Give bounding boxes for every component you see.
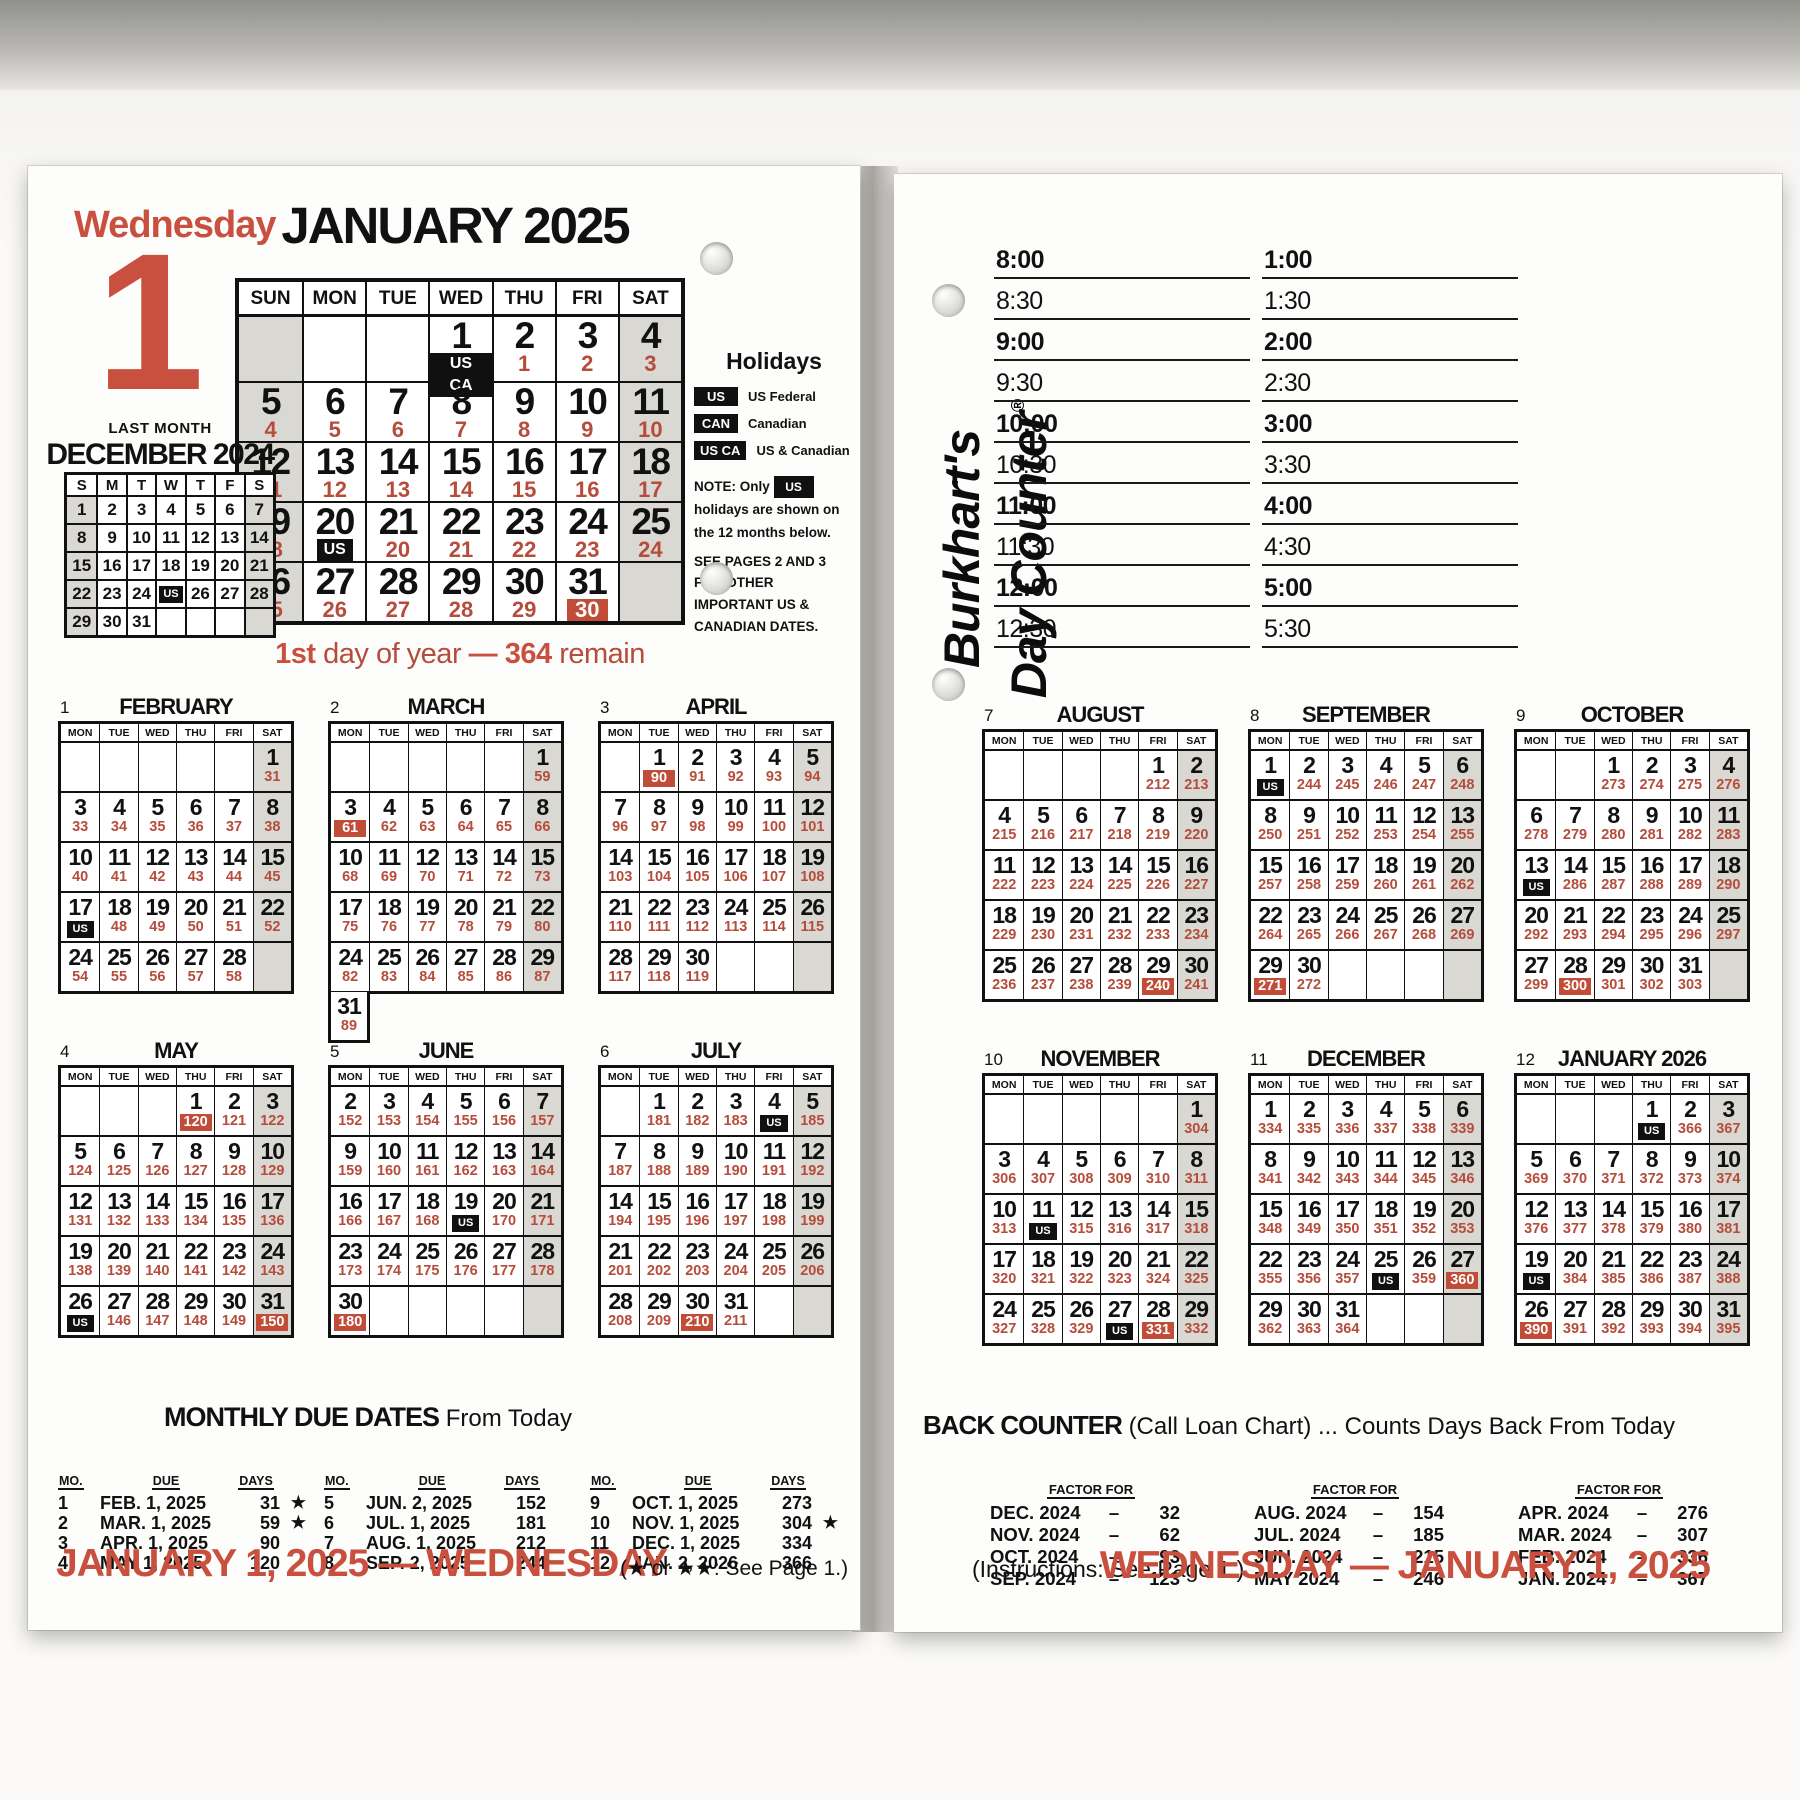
calendar-day-cell bbox=[244, 609, 273, 635]
calendar-day-cell bbox=[99, 1087, 137, 1135]
day-count: 392 bbox=[1595, 1321, 1632, 1338]
weekday-header: THU bbox=[716, 724, 754, 741]
day-count bbox=[1710, 977, 1747, 994]
day-count: 253 bbox=[1367, 827, 1404, 844]
calendar-day-cell: 6278 bbox=[1517, 801, 1555, 849]
weekday-header: TUE bbox=[365, 282, 428, 314]
calendar-day-cell: 27US bbox=[1100, 1295, 1138, 1343]
day-count: 302 bbox=[1633, 977, 1670, 994]
day-number: 24 bbox=[1710, 1247, 1747, 1271]
calendar-day-cell: 1US bbox=[1632, 1095, 1670, 1143]
day-number: 4 bbox=[409, 1089, 446, 1113]
day-count: 135 bbox=[215, 1213, 252, 1230]
day-of-year-text: day of year bbox=[323, 638, 461, 670]
day-count bbox=[1101, 777, 1138, 794]
calendar-day-cell: 12223 bbox=[1023, 851, 1061, 899]
calendar-day-cell: 9281 bbox=[1632, 801, 1670, 849]
day-count: 321 bbox=[1024, 1271, 1061, 1288]
calendar-day-cell: 897 bbox=[639, 793, 677, 841]
day-count: 104 bbox=[640, 869, 677, 886]
day-number: 8 bbox=[430, 385, 491, 419]
day-number: 19 bbox=[794, 1189, 831, 1213]
day-number: 5 bbox=[1405, 753, 1442, 777]
calendar-week-row: 8341934210343113441234513346 bbox=[1251, 1143, 1481, 1193]
calendar-day-cell: 28178 bbox=[523, 1237, 561, 1285]
day-count: 227 bbox=[1178, 877, 1215, 894]
column-header bbox=[812, 1473, 838, 1490]
calendar-day-cell: 19199 bbox=[793, 1187, 831, 1235]
day-number: 23 bbox=[679, 895, 716, 919]
day-count: 23 bbox=[557, 539, 618, 560]
day-number: 15 bbox=[640, 1189, 677, 1213]
day-count: 10 bbox=[620, 419, 681, 440]
day-count: 222 bbox=[985, 877, 1023, 894]
calendar-week-row: 24542555265627572858 bbox=[61, 941, 291, 991]
day-number: 19 bbox=[139, 895, 176, 919]
calendar-day-cell bbox=[253, 943, 291, 991]
day-count: 114 bbox=[755, 919, 792, 936]
day-number: 15 bbox=[1139, 853, 1176, 877]
due-date-row: 6JUL. 1, 2025181 bbox=[324, 1513, 572, 1533]
day-count: 113 bbox=[717, 919, 754, 936]
day-number: 10 bbox=[985, 1197, 1023, 1221]
day-count: 8 bbox=[494, 419, 555, 440]
day-number: 31 bbox=[1329, 1297, 1366, 1321]
calendar-week-row: 112221222313224142251522616227 bbox=[985, 849, 1215, 899]
day-count bbox=[139, 1113, 176, 1130]
calendar-day-cell: 20323 bbox=[1100, 1245, 1138, 1293]
day-count: 395 bbox=[1710, 1321, 1747, 1338]
day-count: 231 bbox=[1063, 927, 1100, 944]
day-count: 280 bbox=[1595, 827, 1632, 844]
day-count: 323 bbox=[1101, 1271, 1138, 1288]
calendar-day-cell: 23142 bbox=[214, 1237, 252, 1285]
calendar-week-row: 215231534154515561567157 bbox=[331, 1087, 561, 1135]
day-number: 26 bbox=[1405, 903, 1442, 927]
photo-canvas: Wednesday 1 JANUARY 2025 SUNMONTUEWEDTHU… bbox=[0, 0, 1800, 1800]
day-count bbox=[1444, 1321, 1481, 1338]
calendar-day-cell: 18198 bbox=[754, 1187, 792, 1235]
factor-month: AUG. 2024 bbox=[1250, 1502, 1366, 1524]
calendar-day-cell: 29 bbox=[67, 609, 96, 635]
day-count bbox=[1101, 1121, 1138, 1138]
calendar-day-cell: US bbox=[155, 581, 184, 607]
calendar-day-cell: 6 bbox=[214, 497, 243, 523]
weekday-header: TUE bbox=[99, 1068, 137, 1085]
calendar-week-row: 2729928300293013030231303 bbox=[1517, 949, 1747, 999]
calendar-day-cell: 434 bbox=[99, 793, 137, 841]
due-star bbox=[546, 1493, 572, 1513]
day-number: 24 bbox=[717, 1239, 754, 1263]
day-count: 87 bbox=[524, 969, 561, 986]
us-holiday-badge: US bbox=[1523, 1273, 1550, 1290]
calendar-day-cell: 1977 bbox=[408, 893, 446, 941]
calendar-day-cell: 22264 bbox=[1251, 901, 1289, 949]
day-count: 6 bbox=[367, 419, 428, 440]
weekday-header-row: MONTUEWEDTHUFRISAT bbox=[1517, 732, 1747, 751]
day-number: 27 bbox=[1556, 1297, 1593, 1321]
mini-month-header: 2MARCH bbox=[328, 694, 564, 721]
day-count: 195 bbox=[640, 1213, 677, 1230]
day-count: 12 bbox=[304, 479, 365, 500]
calendar-day-cell bbox=[1443, 951, 1481, 999]
day-count: 9 bbox=[557, 419, 618, 440]
day-number: 20 bbox=[100, 1239, 137, 1263]
calendar-day-cell: 26359 bbox=[1404, 1245, 1442, 1293]
day-count bbox=[1556, 777, 1593, 794]
day-count: 203 bbox=[679, 1263, 716, 1280]
day-number: 10 bbox=[1329, 803, 1366, 827]
day-number: 4 bbox=[1024, 1147, 1061, 1171]
calendar-day-cell: 998 bbox=[678, 793, 716, 841]
day-number: 31 bbox=[1671, 953, 1708, 977]
calendar-day-cell: 19108 bbox=[793, 843, 831, 891]
day-number: 29 bbox=[1178, 1297, 1215, 1321]
mini-month-grid: MONTUEWEDTHUFRISAT1313334345356367378381… bbox=[58, 721, 294, 994]
day-number bbox=[1063, 1097, 1100, 1121]
day-number: 17 bbox=[254, 1189, 291, 1213]
day-count: 199 bbox=[794, 1213, 831, 1230]
calendar-day-cell: 87 bbox=[428, 383, 491, 441]
day-number: 31 bbox=[1710, 1297, 1747, 1321]
day-count: 112 bbox=[679, 919, 716, 936]
calendar-day-cell: 26390 bbox=[1517, 1295, 1555, 1343]
monthly-due-dates: MONTHLY DUE DATES From Today MO.DUEDAYS1… bbox=[28, 1402, 860, 1433]
calendar-day-cell: 2078 bbox=[446, 893, 484, 941]
day-count: 58 bbox=[215, 969, 252, 986]
day-count: 1 bbox=[494, 353, 555, 374]
day-number: 23 bbox=[331, 1239, 369, 1263]
calendar-day-cell: 18321 bbox=[1023, 1245, 1061, 1293]
column-header-text: MO. bbox=[324, 1474, 350, 1490]
calendar-day-cell: 21140 bbox=[138, 1237, 176, 1285]
day-number: 11 bbox=[755, 795, 792, 819]
day-number: 24 bbox=[985, 1297, 1023, 1321]
day-number: 13 bbox=[1444, 803, 1481, 827]
holidays-title: Holidays bbox=[694, 348, 854, 375]
back-counter-row: APR. 2024–276 bbox=[1514, 1502, 1724, 1524]
calendar-day-cell: 30149 bbox=[214, 1287, 252, 1335]
day-number: 2 bbox=[679, 745, 716, 769]
day-number: 16 bbox=[494, 445, 555, 479]
day-count: 318 bbox=[1178, 1221, 1215, 1238]
day-number: 6 bbox=[1556, 1147, 1593, 1171]
day-number: 11 bbox=[1367, 803, 1404, 827]
day-count: 290 bbox=[1710, 877, 1747, 894]
time-label: 9:30 bbox=[996, 369, 1043, 398]
time-label: 3:00 bbox=[1264, 410, 1312, 439]
day-count: 150 bbox=[256, 1314, 288, 1331]
day-number: 9 bbox=[331, 1139, 369, 1163]
day-count: 232 bbox=[1101, 927, 1138, 944]
calendar-day-cell: 31 bbox=[126, 609, 155, 635]
mini-month-october: 9OCTOBERMONTUEWEDTHUFRISAT12732274327542… bbox=[1514, 702, 1750, 1002]
day-number: 1 bbox=[1251, 1097, 1289, 1121]
day-number bbox=[1556, 753, 1593, 777]
day-number bbox=[1367, 953, 1404, 977]
calendar-day-cell: 16227 bbox=[1177, 851, 1215, 899]
day-count: 63 bbox=[409, 819, 446, 836]
day-count bbox=[1367, 977, 1404, 994]
calendar-week-row: 159 bbox=[331, 743, 561, 791]
day-count: 51 bbox=[215, 919, 252, 936]
time-label: 12:00 bbox=[996, 574, 1057, 603]
day-number: 9 bbox=[1290, 1147, 1327, 1171]
day-number: 11 bbox=[985, 853, 1023, 877]
calendar-week-row: 8250925110252112531225413255 bbox=[1251, 799, 1481, 849]
calendar-day-cell: 737 bbox=[214, 793, 252, 841]
day-number: 15 bbox=[177, 1189, 214, 1213]
day-number: 23 bbox=[215, 1239, 252, 1263]
calendar-day-cell: 1120 bbox=[176, 1087, 214, 1135]
back-counter-heading: BACK COUNTER bbox=[923, 1410, 1122, 1440]
calendar-day-cell bbox=[1404, 951, 1442, 999]
calendar-day-cell: 13377 bbox=[1555, 1195, 1593, 1243]
calendar-week-row: 1181218231834US5185 bbox=[601, 1087, 831, 1135]
day-number: 6 bbox=[1101, 1147, 1138, 1171]
day-of-year-line: 1st day of year — 364 remain bbox=[235, 638, 685, 671]
calendar-day-cell: 22 bbox=[67, 581, 96, 607]
day-number bbox=[985, 1097, 1023, 1121]
day-count: 21 bbox=[430, 539, 491, 560]
day-number: 27 bbox=[1444, 1247, 1481, 1271]
day-count: 236 bbox=[985, 977, 1023, 994]
calendar-day-cell: 10343 bbox=[1328, 1145, 1366, 1193]
day-number: 30 bbox=[679, 945, 716, 969]
day-number: 17 bbox=[61, 895, 99, 919]
calendar-day-cell: 18107 bbox=[754, 843, 792, 891]
calendar-day-cell: 796 bbox=[601, 793, 639, 841]
us-badge: US bbox=[694, 387, 738, 406]
calendar-day-cell: 29118 bbox=[639, 943, 677, 991]
day-number: 1 bbox=[1633, 1097, 1670, 1121]
time-slot: 1:00 bbox=[1262, 238, 1518, 279]
day-number: 11 bbox=[1024, 1197, 1061, 1221]
day-count: 295 bbox=[1633, 927, 1670, 944]
day-number: 16 bbox=[679, 845, 716, 869]
calendar-day-cell: 7279 bbox=[1555, 801, 1593, 849]
day-number: 9 bbox=[679, 795, 716, 819]
day-number: 22 bbox=[1251, 903, 1289, 927]
day-count: 161 bbox=[409, 1163, 446, 1180]
calendar-day-cell: 2482 bbox=[331, 943, 369, 991]
day-number: 19 bbox=[409, 895, 446, 919]
calendar-day-cell: 24296 bbox=[1670, 901, 1708, 949]
calendar-day-cell bbox=[331, 743, 369, 791]
calendar-week-row: 141941519516196171971819819199 bbox=[601, 1185, 831, 1235]
day-number bbox=[1101, 753, 1138, 777]
month-name: FEBRUARY bbox=[58, 694, 294, 720]
calendar-day-cell: 4337 bbox=[1366, 1095, 1404, 1143]
day-number: 27 bbox=[485, 1239, 522, 1263]
factor-month: JUL. 2024 bbox=[1250, 1524, 1366, 1546]
time-slot: 3:30 bbox=[1262, 443, 1518, 484]
day-count: 367 bbox=[1710, 1121, 1747, 1138]
factor-value: 185 bbox=[1390, 1524, 1444, 1546]
day-count: 278 bbox=[1517, 827, 1555, 844]
month-name: SEPTEMBER bbox=[1248, 702, 1484, 728]
day-count: 75 bbox=[331, 919, 369, 936]
calendar-day-cell: 361 bbox=[331, 793, 369, 841]
day-number: 29 bbox=[1595, 953, 1632, 977]
day-count: 48 bbox=[100, 919, 137, 936]
day-count: 136 bbox=[254, 1213, 291, 1230]
day-count: 276 bbox=[1710, 777, 1747, 794]
calendar-day-cell: 10160 bbox=[369, 1137, 407, 1185]
calendar-day-cell: 17 bbox=[126, 553, 155, 579]
day-count: 106 bbox=[717, 869, 754, 886]
day-number: 13 bbox=[1444, 1147, 1481, 1171]
calendar-day-cell: 1615 bbox=[492, 443, 555, 501]
calendar-day-cell: 26 bbox=[185, 581, 214, 607]
weekday-header: WED bbox=[1594, 1076, 1632, 1093]
weekday-header: MON bbox=[1517, 732, 1555, 749]
month-name: AUGUST bbox=[982, 702, 1218, 728]
day-number: 22 bbox=[524, 895, 561, 919]
day-count: 262 bbox=[1444, 877, 1481, 894]
calendar-day-cell bbox=[1100, 751, 1138, 799]
day-number: 11 bbox=[755, 1139, 792, 1163]
due-month-number: 1 bbox=[58, 1493, 90, 1513]
day-number: 31 bbox=[557, 565, 618, 599]
day-number bbox=[139, 1089, 176, 1113]
day-count: 247 bbox=[1405, 777, 1442, 794]
due-date: MAR. 1, 2025 bbox=[90, 1513, 232, 1533]
day-number: 20 bbox=[177, 895, 214, 919]
day-count: 79 bbox=[485, 919, 522, 936]
day-count bbox=[1556, 1121, 1593, 1138]
calendar-day-cell: 15379 bbox=[1632, 1195, 1670, 1243]
day-number: 10 bbox=[254, 1139, 291, 1163]
day-count: 364 bbox=[1329, 1321, 1366, 1338]
day-number bbox=[1139, 1097, 1176, 1121]
calendar-day-cell: 22111 bbox=[639, 893, 677, 941]
due-month-number: 5 bbox=[324, 1493, 356, 1513]
calendar-day-cell: 15104 bbox=[639, 843, 677, 891]
day-count: 300 bbox=[1559, 978, 1591, 995]
weekday-header: WED bbox=[408, 724, 446, 741]
day-number bbox=[1595, 1097, 1632, 1121]
day-number: 3 bbox=[331, 795, 369, 819]
calendar-day-cell: 25114 bbox=[754, 893, 792, 941]
weekday-header: TUE bbox=[99, 724, 137, 741]
due-date-row: 2MAR. 1, 202559★ bbox=[58, 1513, 306, 1533]
day-number bbox=[1024, 753, 1061, 777]
calendar-day-cell: 8188 bbox=[639, 1137, 677, 1185]
calendar-day-cell: 392 bbox=[716, 743, 754, 791]
column-header: MO. bbox=[324, 1473, 356, 1490]
day-number: 2 bbox=[1671, 1097, 1708, 1121]
column-header-text: MO. bbox=[590, 1474, 616, 1490]
holidays-note: NOTE: Only US holidays are shown on the … bbox=[694, 476, 854, 545]
calendar-day-cell: 29332 bbox=[1177, 1295, 1215, 1343]
month-index: 5 bbox=[330, 1042, 339, 1062]
month-index: 3 bbox=[600, 698, 609, 718]
calendar-day-cell: 27146 bbox=[99, 1287, 137, 1335]
calendar-day-cell: 22325 bbox=[1177, 1245, 1215, 1293]
calendar-day-cell: 11191 bbox=[754, 1137, 792, 1185]
day-count: 209 bbox=[640, 1313, 677, 1330]
can-badge: CAN bbox=[694, 414, 738, 433]
calendar-day-cell: 7218 bbox=[1100, 801, 1138, 849]
us-holiday-badge: US bbox=[1523, 879, 1550, 896]
column-header-text: DUE bbox=[418, 1474, 446, 1490]
day-count: 29 bbox=[494, 599, 555, 620]
day-count: 91 bbox=[679, 769, 716, 786]
calendar-day-cell: 21324 bbox=[1138, 1245, 1176, 1293]
day-count: 121 bbox=[215, 1113, 252, 1130]
day-count: 310 bbox=[1139, 1171, 1176, 1188]
day-number: 5 bbox=[139, 795, 176, 819]
day-count bbox=[100, 1113, 137, 1130]
time-label: 10:00 bbox=[996, 410, 1057, 439]
calendar-day-cell: 17197 bbox=[716, 1187, 754, 1235]
day-count: 42 bbox=[139, 869, 176, 886]
factor-value: 62 bbox=[1126, 1524, 1180, 1546]
day-number: 20 bbox=[1444, 853, 1481, 877]
mini-month-september: 8SEPTEMBERMONTUEWEDTHUFRISAT1US224432454… bbox=[1248, 702, 1484, 1002]
day-number: 22 bbox=[1178, 1247, 1215, 1271]
day-count: 146 bbox=[100, 1313, 137, 1330]
calendar-day-cell bbox=[1517, 751, 1555, 799]
column-header-text: DAYS bbox=[770, 1474, 806, 1490]
day-number: 22 bbox=[254, 895, 291, 919]
factor-value: 154 bbox=[1390, 1502, 1444, 1524]
factor-month: APR. 2024 bbox=[1514, 1502, 1630, 1524]
day-count: 258 bbox=[1290, 877, 1327, 894]
january-grid: SUNMONTUEWEDTHUFRISAT1US CA2132435465768… bbox=[235, 278, 685, 625]
calendar-day-cell: 12254 bbox=[1404, 801, 1442, 849]
weekday-header: MON bbox=[985, 732, 1023, 749]
day-number: 14 bbox=[139, 1189, 176, 1213]
day-number: 10 bbox=[370, 1139, 407, 1163]
day-count: 245 bbox=[1329, 777, 1366, 794]
mini-month-header: 6JULY bbox=[598, 1038, 834, 1065]
day-number: 15 bbox=[430, 445, 491, 479]
day-number: 3 bbox=[1329, 1097, 1366, 1121]
day-number: 30 bbox=[1290, 953, 1327, 977]
weekday-header: MON bbox=[61, 1068, 99, 1085]
day-number: 6 bbox=[1444, 753, 1481, 777]
day-count bbox=[1517, 777, 1555, 794]
calendar-day-cell: 30272 bbox=[1289, 951, 1327, 999]
mini-month-header: 4MAY bbox=[58, 1038, 294, 1065]
day-number: 4 bbox=[370, 795, 407, 819]
day-count bbox=[620, 565, 681, 586]
calendar-day-cell: 594 bbox=[793, 743, 831, 791]
day-number: 12 bbox=[794, 1139, 831, 1163]
day-count: 391 bbox=[1556, 1321, 1593, 1338]
day-count: 393 bbox=[1633, 1321, 1670, 1338]
weekday-header: SUN bbox=[239, 282, 302, 314]
calendar-day-cell: 2151 bbox=[214, 893, 252, 941]
day-number: 23 bbox=[679, 1239, 716, 1263]
mini-month-june: 5JUNEMONTUEWEDTHUFRISAT21523153415451556… bbox=[328, 1038, 564, 1338]
calendar-day-cell: 24174 bbox=[369, 1237, 407, 1285]
calendar-day-cell: 20 bbox=[214, 553, 243, 579]
calendar-week-row: 281172911830119 bbox=[601, 941, 831, 991]
calendar-day-cell: 1817 bbox=[618, 443, 681, 501]
day-count: 57 bbox=[177, 969, 214, 986]
day-number: 24 bbox=[557, 505, 618, 539]
weekday-header: TUE bbox=[1555, 1076, 1593, 1093]
day-count: 348 bbox=[1251, 1221, 1289, 1238]
day-number: 21 bbox=[1101, 903, 1138, 927]
day-count: 71 bbox=[447, 869, 484, 886]
weekday-header: MON bbox=[1251, 732, 1289, 749]
day-count: 223 bbox=[1024, 877, 1061, 894]
calendar-day-cell bbox=[754, 943, 792, 991]
